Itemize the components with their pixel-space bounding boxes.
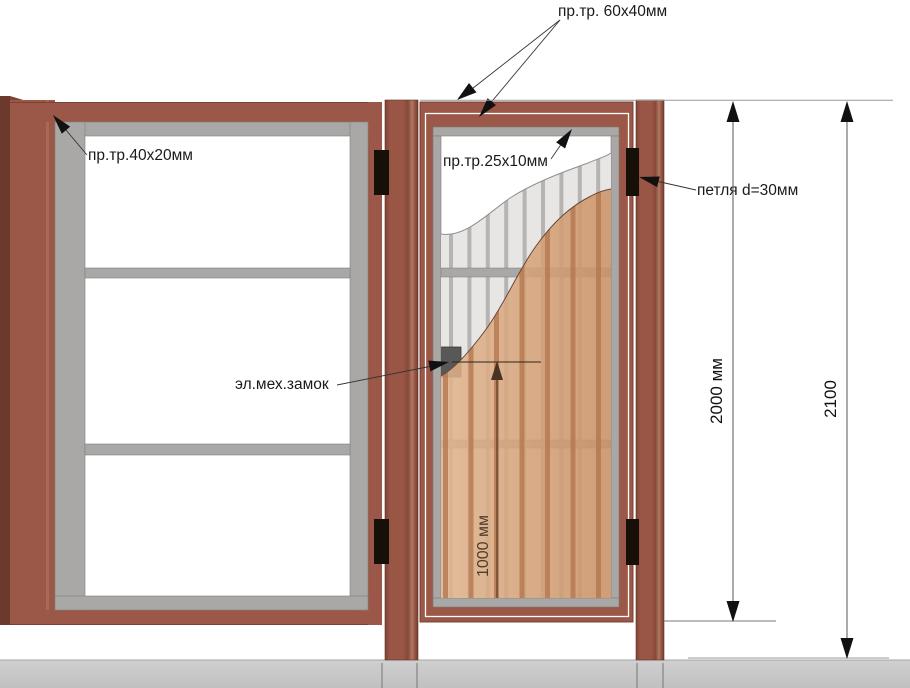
ground <box>0 660 910 688</box>
panel-hinge-bottom <box>374 519 389 564</box>
panel-hinge-top <box>374 150 389 195</box>
drawing-canvas: 1000 мм пр.тр. 60x40мм пр.тр.40x20мм пр.… <box>0 0 910 688</box>
lock-height-dimension-label: 1000 мм <box>475 515 492 577</box>
overall-height-dimension-label: 2100 <box>821 380 840 418</box>
callout-label: пр.тр. 60x40мм <box>558 3 667 20</box>
callout-arrow-icon <box>457 83 477 100</box>
wicket-gate: 1000 мм <box>420 102 633 622</box>
gate-hinge-top <box>626 148 639 196</box>
callout-label: петля d=30мм <box>697 182 798 199</box>
gate-height-dimension-label: 2000 мм <box>707 358 726 424</box>
callout-label: пр.тр.40x20мм <box>88 147 193 164</box>
callout-label: пр.тр.25x10мм <box>443 153 548 170</box>
dimension-2000mm: 2000 мм <box>707 101 740 622</box>
arrow-up-icon <box>727 101 740 122</box>
arrow-up-icon <box>841 101 854 122</box>
panel-top-rail <box>10 102 382 122</box>
left-fence-panel <box>0 96 382 625</box>
dimension-2100: 2100 <box>821 101 854 659</box>
arrow-down-icon <box>727 601 740 622</box>
panel-left-3d-edge <box>0 96 10 625</box>
panel-crossbar-upper <box>85 268 350 278</box>
panel-bottom-rail <box>10 610 382 625</box>
panel-inner-frame-40x20 <box>55 122 368 610</box>
right-post <box>636 100 664 660</box>
callout-label: эл.мех.замок <box>235 376 329 393</box>
arrow-down-icon <box>841 638 854 659</box>
fence-gate-diagram: 1000 мм пр.тр. 60x40мм пр.тр.40x20мм пр.… <box>0 0 910 688</box>
middle-post <box>385 100 418 660</box>
gate-hinge-bottom <box>626 519 639 565</box>
panel-crossbar-lower <box>85 444 350 455</box>
